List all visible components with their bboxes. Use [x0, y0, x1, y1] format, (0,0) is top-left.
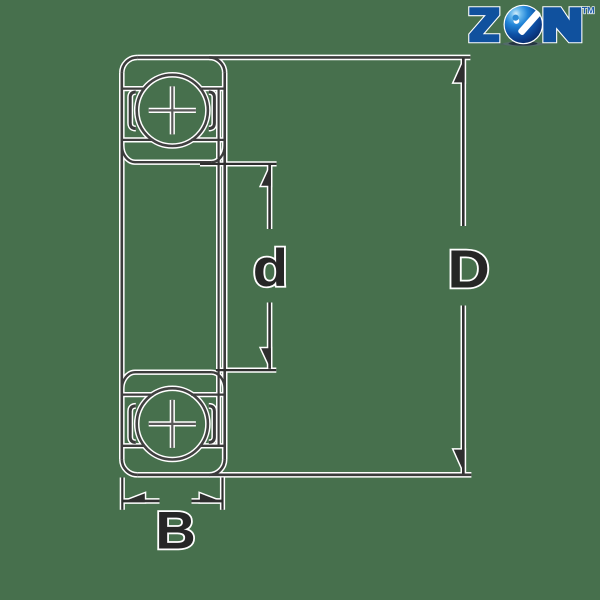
svg-text:d: d [253, 239, 288, 298]
svg-text:B: B [155, 502, 195, 561]
svg-text:D: D [448, 239, 490, 299]
svg-text:TM: TM [582, 5, 594, 15]
